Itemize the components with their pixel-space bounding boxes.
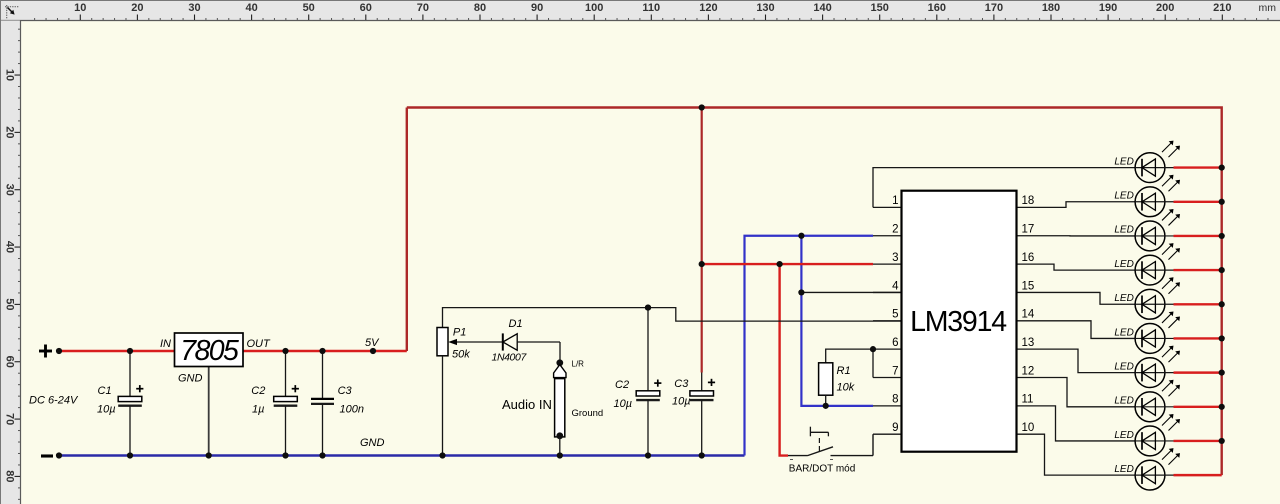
svg-text:OUT: OUT <box>247 338 272 350</box>
svg-text:190: 190 <box>1099 2 1117 14</box>
svg-text:120: 120 <box>699 2 717 14</box>
svg-text:LED: LED <box>1114 293 1133 304</box>
svg-text:200: 200 <box>1156 2 1174 14</box>
svg-text:2: 2 <box>892 224 898 236</box>
svg-text:80: 80 <box>474 2 486 14</box>
svg-text:C3: C3 <box>674 378 689 390</box>
svg-text:170: 170 <box>985 2 1003 14</box>
svg-text:210: 210 <box>1213 2 1231 14</box>
svg-text:70: 70 <box>417 2 429 14</box>
svg-text:60: 60 <box>360 2 372 14</box>
svg-text:LED: LED <box>1114 156 1133 167</box>
svg-text:15: 15 <box>1022 280 1035 292</box>
svg-text:LED: LED <box>1114 396 1133 407</box>
svg-text:LED: LED <box>1114 327 1133 338</box>
svg-text:110: 110 <box>642 2 660 14</box>
svg-text:40: 40 <box>245 2 257 14</box>
svg-text:10µ: 10µ <box>97 404 116 416</box>
svg-text:4: 4 <box>892 280 899 292</box>
svg-text:LED: LED <box>1114 464 1133 475</box>
svg-text:11: 11 <box>1022 394 1034 406</box>
svg-text:1: 1 <box>892 195 898 207</box>
svg-text:LED: LED <box>1114 259 1133 270</box>
svg-text:17: 17 <box>1022 224 1035 236</box>
svg-text:18: 18 <box>1022 195 1035 207</box>
svg-text:90: 90 <box>531 2 543 14</box>
svg-text:180: 180 <box>1042 2 1060 14</box>
svg-text:30: 30 <box>4 184 16 196</box>
svg-text:LED: LED <box>1114 191 1133 202</box>
svg-text:BAR/DOT mód: BAR/DOT mód <box>789 464 856 475</box>
svg-text:1µ: 1µ <box>252 404 264 416</box>
svg-text:1N4007: 1N4007 <box>492 352 528 364</box>
svg-text:10: 10 <box>4 69 16 81</box>
svg-text:C2: C2 <box>251 385 265 397</box>
svg-text:20: 20 <box>131 2 143 14</box>
svg-text:10: 10 <box>1022 422 1035 434</box>
svg-text:140: 140 <box>813 2 831 14</box>
svg-text:L/R: L/R <box>572 360 585 369</box>
svg-text:50: 50 <box>303 2 315 14</box>
svg-text:10µ: 10µ <box>614 398 633 410</box>
svg-text:10k: 10k <box>837 382 855 394</box>
svg-text:9: 9 <box>892 422 898 434</box>
svg-text:R1: R1 <box>837 365 851 377</box>
svg-text:7805: 7805 <box>180 335 239 367</box>
svg-text:30: 30 <box>188 2 200 14</box>
svg-text:150: 150 <box>871 2 889 14</box>
svg-text:100: 100 <box>585 2 603 14</box>
svg-text:DC 6-24V: DC 6-24V <box>29 395 79 407</box>
svg-text:GND: GND <box>178 373 203 385</box>
svg-text:8: 8 <box>892 394 898 406</box>
svg-text:130: 130 <box>756 2 774 14</box>
svg-text:80: 80 <box>4 470 16 482</box>
svg-text:mm: mm <box>1259 2 1277 14</box>
svg-text:5V: 5V <box>365 337 380 349</box>
svg-text:6: 6 <box>892 337 898 349</box>
svg-text:Ground: Ground <box>572 408 604 419</box>
svg-text:60: 60 <box>4 356 16 368</box>
svg-text:C1: C1 <box>98 385 112 397</box>
svg-text:LM3914: LM3914 <box>910 306 1007 338</box>
svg-text:10µ: 10µ <box>672 396 691 408</box>
svg-text:C3: C3 <box>338 385 353 397</box>
svg-text:14: 14 <box>1022 309 1035 321</box>
svg-text:C2: C2 <box>615 379 629 391</box>
svg-text:160: 160 <box>928 2 946 14</box>
svg-text:10: 10 <box>74 2 86 14</box>
svg-text:50k: 50k <box>452 349 470 361</box>
svg-text:LED: LED <box>1114 361 1133 372</box>
svg-text:5: 5 <box>892 309 898 321</box>
svg-text:GND: GND <box>360 437 385 449</box>
svg-text:20: 20 <box>4 126 16 138</box>
svg-text:Audio IN: Audio IN <box>502 397 552 412</box>
svg-text:LED: LED <box>1114 225 1133 236</box>
svg-text:D1: D1 <box>509 318 523 330</box>
svg-text:13: 13 <box>1022 337 1035 349</box>
svg-text:40: 40 <box>4 241 16 253</box>
svg-text:100n: 100n <box>340 404 364 416</box>
svg-text:70: 70 <box>4 413 16 425</box>
svg-text:16: 16 <box>1022 252 1035 264</box>
svg-text:IN: IN <box>160 338 171 350</box>
svg-text:50: 50 <box>4 298 16 310</box>
svg-text:12: 12 <box>1022 365 1035 377</box>
svg-text:P1: P1 <box>453 327 466 339</box>
svg-text:7: 7 <box>892 365 898 377</box>
svg-text:3: 3 <box>892 252 898 264</box>
svg-text:LED: LED <box>1114 430 1133 441</box>
